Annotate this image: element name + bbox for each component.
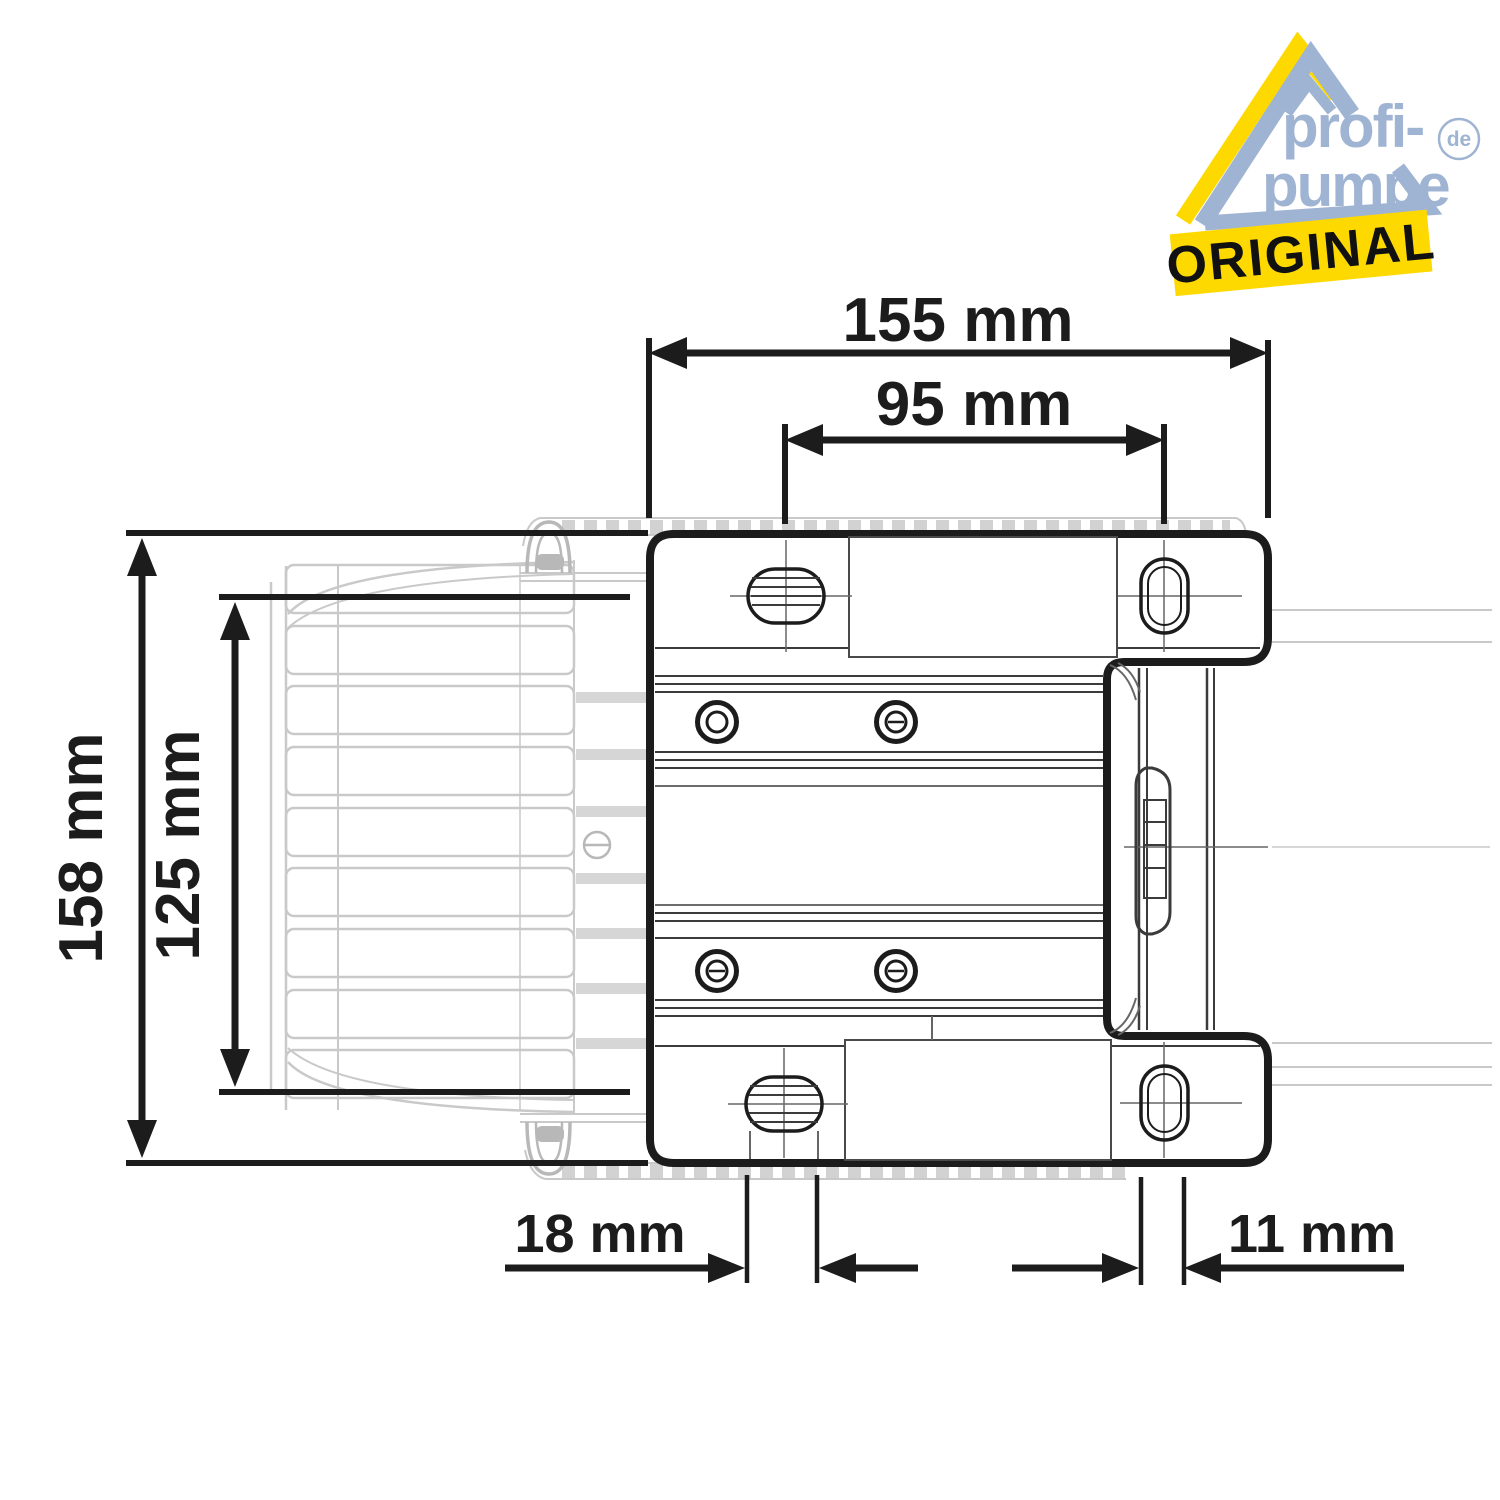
barrel-screw-icon xyxy=(584,832,610,858)
dimension-height-fins: 125 mm xyxy=(144,597,630,1092)
pump-dimension-drawing: 155 mm 95 mm 158 mm 125 mm 18 mm xyxy=(0,0,1500,1500)
clamp-bottom xyxy=(527,1122,570,1174)
dimension-label-11mm: 11 mm xyxy=(1228,1204,1396,1264)
notch-pump-detail xyxy=(1110,663,1268,1035)
dimension-hole-spacing: 95 mm xyxy=(785,370,1164,524)
dimension-slot-left-width: 18 mm xyxy=(505,1175,918,1283)
brand-logo: profi- pumpe de ORIGINAL xyxy=(1164,46,1479,297)
logo-domain-label: de xyxy=(1447,128,1472,151)
pump-right-faded-lines xyxy=(1272,610,1492,1085)
logo-domain-circle: de xyxy=(1439,119,1479,159)
latch-clip xyxy=(1136,768,1170,934)
mounting-plate xyxy=(650,534,1268,1163)
dimension-label-155mm: 155 mm xyxy=(843,286,1074,355)
barrel-bands xyxy=(576,692,648,1049)
cooling-fins xyxy=(286,565,574,1098)
dimension-label-18mm: 18 mm xyxy=(514,1204,685,1264)
logo-word-profi: profi- xyxy=(1282,93,1423,160)
saddle-mask-top xyxy=(849,537,1117,657)
dimension-height-total: 158 mm xyxy=(47,533,648,1163)
technical-drawing-page: 155 mm 95 mm 158 mm 125 mm 18 mm xyxy=(0,0,1500,1500)
dimension-label-158mm: 158 mm xyxy=(47,733,116,964)
dimension-slot-right-width: 11 mm xyxy=(1012,1177,1404,1285)
saddle-mask-bottom xyxy=(845,1040,1111,1160)
logo-word-pumpe: pumpe xyxy=(1262,152,1449,219)
dimension-label-125mm: 125 mm xyxy=(144,730,213,961)
dimension-label-95mm: 95 mm xyxy=(876,370,1072,439)
